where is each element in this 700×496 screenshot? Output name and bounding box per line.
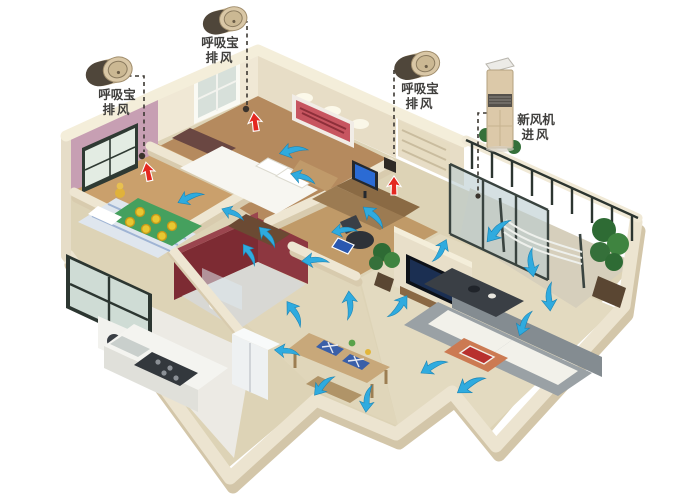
intake-point-dot bbox=[475, 193, 480, 198]
callout-line1: 新风机 bbox=[498, 113, 574, 128]
breather-exhaust-device-icon bbox=[392, 48, 443, 83]
callout-line1: 呼吸宝 bbox=[79, 88, 155, 103]
callout-fresh-air: 新风机 进风 bbox=[498, 113, 574, 144]
callout-line2: 排风 bbox=[182, 51, 258, 66]
callout-line1: 呼吸宝 bbox=[382, 82, 458, 97]
callout-line1: 呼吸宝 bbox=[182, 36, 258, 51]
callout-line2: 排风 bbox=[382, 97, 458, 112]
apartment-isometric-render bbox=[0, 0, 700, 496]
teddy-bear bbox=[115, 188, 125, 198]
callout-exhaust-left: 呼吸宝 排风 bbox=[79, 88, 155, 119]
breather-exhaust-device-icon bbox=[83, 54, 135, 90]
breather-exhaust-device-icon bbox=[200, 4, 250, 38]
exhaust-vent-dot bbox=[243, 106, 249, 112]
callout-line2: 进风 bbox=[498, 128, 574, 143]
callout-exhaust-top: 呼吸宝 排风 bbox=[182, 36, 258, 67]
callout-line2: 排风 bbox=[79, 103, 155, 118]
ventilation-floorplan-scene: 呼吸宝 排风 呼吸宝 排风 呼吸宝 排风 新风机 进风 bbox=[0, 0, 700, 496]
exhaust-vent-dot bbox=[139, 153, 145, 159]
callout-exhaust-right: 呼吸宝 排风 bbox=[382, 82, 458, 113]
